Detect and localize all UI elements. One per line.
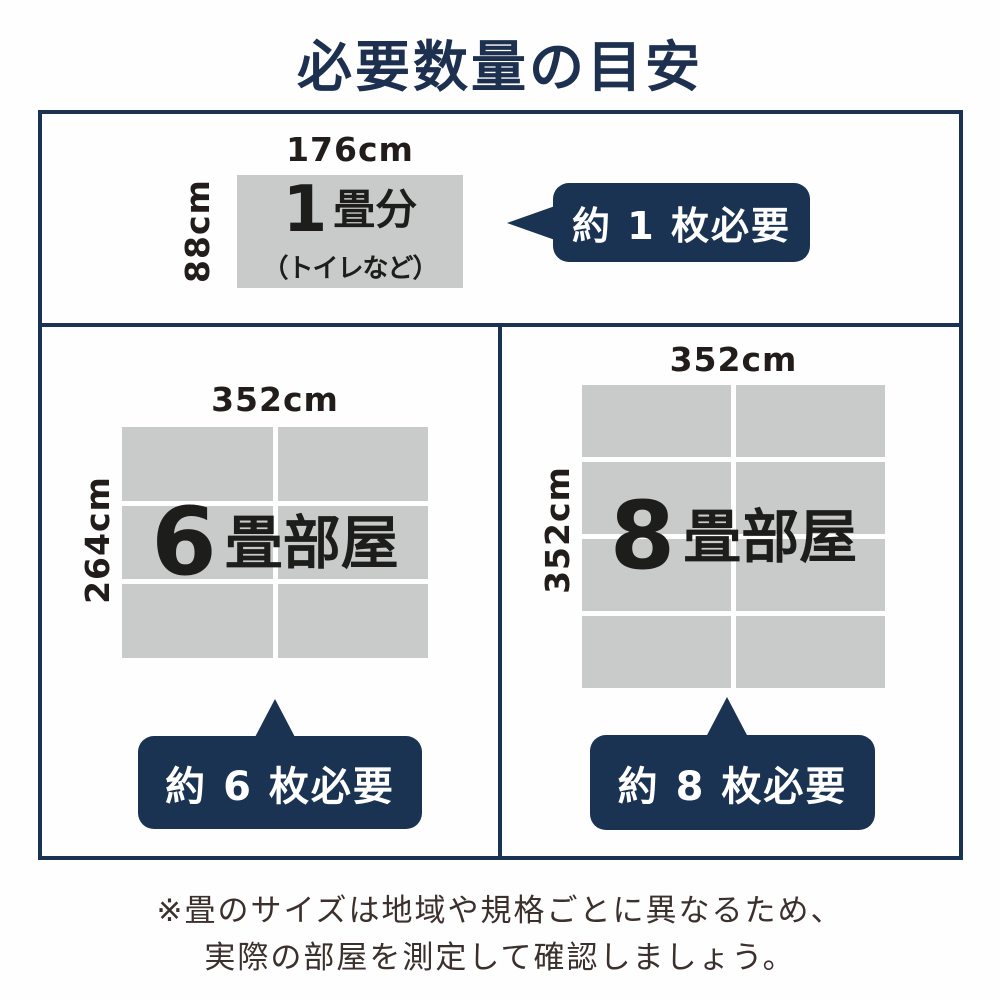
eight-tatami-number: 8 [610,490,675,584]
six-tatami-width-label: 352cm [122,383,428,417]
one-tatami-width-label: 176cm [237,133,463,167]
six-tatami-suffix: 畳部屋 [225,514,399,572]
eight-tatami-height-label: 352cm [541,460,575,600]
six-tatami-number: 6 [151,496,216,590]
one-tatami-suffix: 畳分 [333,189,417,231]
infographic-canvas: 必要数量の目安 176cm 88cm 1 畳分 （トイレなど） 約 1 枚必要 … [0,0,1000,1000]
page-title: 必要数量の目安 [0,22,1000,102]
six-tatami-height-label: 264cm [81,470,115,610]
eight-tatami-width-label: 352cm [582,343,885,377]
one-tatami-rect: 1 畳分 （トイレなど） [237,175,463,288]
bubble-tail-left-icon [507,206,555,240]
one-tatami-bubble: 約 1 枚必要 [553,183,810,262]
one-tatami-title: 1 畳分 [283,178,418,242]
eight-tatami-bubble: 約 8 枚必要 [590,735,875,830]
bubble-tail-up-icon [706,697,748,737]
bubble-tail-up-icon [254,699,296,739]
footnote-line-2: 実際の部屋を測定して確認しましょう。 [0,932,1000,977]
one-tatami-number: 1 [283,178,328,242]
vertical-divider [498,325,502,860]
eight-tatami-suffix: 畳部屋 [683,508,857,566]
six-tatami-bubble: 約 6 枚必要 [138,736,422,829]
one-tatami-height-label: 88cm [181,161,215,301]
six-tatami-room-label: 6 畳部屋 [122,427,428,658]
one-tatami-note: （トイレなど） [262,248,437,285]
eight-tatami-room-label: 8 畳部屋 [582,385,885,688]
footnote-line-1: ※畳のサイズは地域や規格ごとに異なるため、 [0,885,1000,930]
